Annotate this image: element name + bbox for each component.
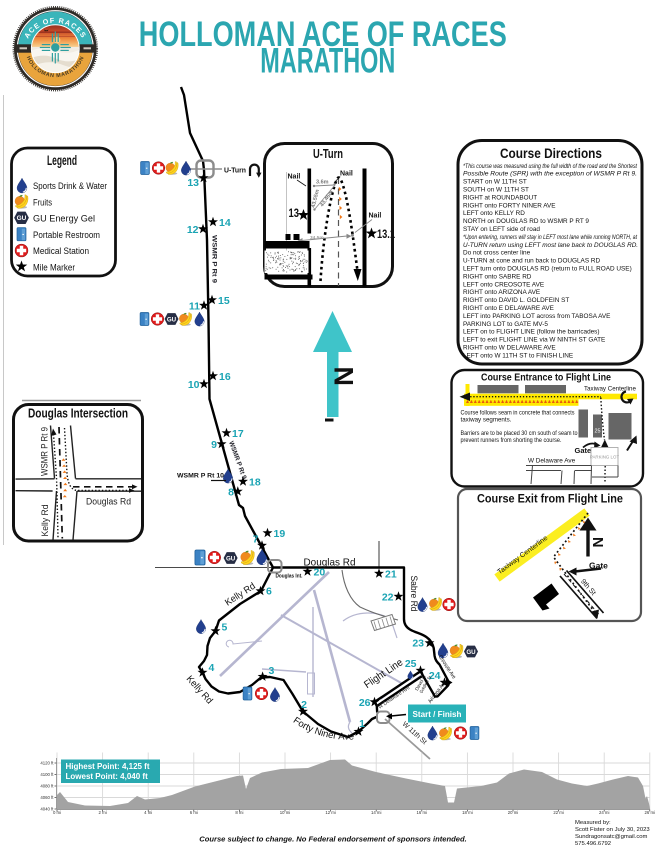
svg-text:Course follows seam in concret: Course follows seam in concrete that con… [461,410,575,417]
svg-text:Nail: Nail [369,213,382,220]
svg-text:WSMR P Rt 9: WSMR P Rt 9 [40,427,50,476]
svg-text:25: 25 [595,429,601,435]
svg-text:13: 13 [289,208,300,220]
svg-text:4: 4 [209,662,215,674]
svg-text:12: 12 [187,224,199,236]
svg-text:8: 8 [228,487,234,499]
svg-text:5: 5 [222,622,228,634]
svg-text:RIGHT onto E DELAWARE AVE: RIGHT onto E DELAWARE AVE [463,305,554,312]
svg-text:19: 19 [274,528,286,540]
svg-text:N: N [329,367,359,387]
svg-text:23: 23 [412,638,424,650]
svg-text:LEFT onto CREOSOTE AVE: LEFT onto CREOSOTE AVE [463,281,544,288]
svg-text:U-Turn: U-Turn [313,146,343,161]
svg-text:Taxiway Centerline: Taxiway Centerline [584,386,636,393]
svg-text:LEFT onto KELLY RD: LEFT onto KELLY RD [463,210,525,217]
svg-text:13.1: 13.1 [377,229,395,241]
svg-text:Douglas Intersection: Douglas Intersection [28,407,128,421]
svg-text:Douglas Rd: Douglas Rd [86,497,131,507]
svg-text:4120 ft: 4120 ft [40,761,54,766]
svg-text:*Upon entering, runners will s: *Upon entering, runners will stay in LEF… [463,234,637,241]
svg-text:MARATHON: MARATHON [260,42,395,81]
svg-text:Highest Point: 4,125 ft: Highest Point: 4,125 ft [66,762,150,771]
svg-text:22: 22 [382,592,394,604]
svg-text:prevent runners from shorting: prevent runners from shorting the course… [461,437,562,444]
svg-text:RIGHT onto ARIZONA AVE: RIGHT onto ARIZONA AVE [463,289,540,296]
svg-text:PARKING LOT to GATE MV-5: PARKING LOT to GATE MV-5 [463,321,548,328]
svg-text:LEFT on to FLIGHT LINE (follow: LEFT on to FLIGHT LINE (follow the barri… [463,329,600,336]
svg-text:Course subject to change. No F: Course subject to change. No Federal end… [199,835,467,844]
svg-text:PARKING LOT: PARKING LOT [590,455,620,460]
svg-text:Mile Marker: Mile Marker [33,263,76,274]
svg-text:Possible Route (SPR) with the: Possible Route (SPR) with the exception … [463,171,637,178]
svg-text:17: 17 [232,428,244,440]
svg-text:Douglas Rd: Douglas Rd [304,557,356,569]
svg-text:18: 18 [249,477,261,489]
svg-text:26: 26 [359,697,371,709]
svg-text:RIGHT onto FORTY NINER AVE: RIGHT onto FORTY NINER AVE [463,202,556,209]
svg-text:Scott Fister on July 30, 2023: Scott Fister on July 30, 2023 [575,827,650,833]
svg-text:RIGHT onto DAVID L. GOLDFEIN S: RIGHT onto DAVID L. GOLDFEIN ST [463,297,569,304]
svg-text:7: 7 [253,534,259,546]
svg-text:taxiway segments.: taxiway segments. [461,417,512,424]
svg-text:4100 ft: 4100 ft [40,772,54,777]
svg-text:3.6m: 3.6m [316,180,329,186]
svg-text:U-Turn: U-Turn [224,166,246,175]
svg-text:SOUTH on W 11TH ST: SOUTH on W 11TH ST [463,187,529,194]
svg-text:START on W 11TH ST: START on W 11TH ST [463,179,527,186]
svg-text:LEFT onto W 11TH ST to FINISH: LEFT onto W 11TH ST to FINISH LINE [463,352,573,359]
svg-text:N: N [589,537,605,547]
svg-text:4080 ft: 4080 ft [40,784,54,789]
svg-text:4060 ft: 4060 ft [40,795,54,800]
svg-text:10: 10 [188,379,200,391]
svg-text:Sabre Rd: Sabre Rd [408,576,419,612]
svg-text:NORTH on DOUGLAS RD to WSMR P: NORTH on DOUGLAS RD to WSMR P RT 9 [463,218,589,225]
svg-text:Douglas Int.: Douglas Int. [276,573,303,579]
svg-text:U-TURN return using LEFT most: U-TURN return using LEFT most lane back … [463,242,638,249]
svg-text:575.496.6792: 575.496.6792 [575,841,611,847]
svg-text:Sundragonsatc@gmail.com: Sundragonsatc@gmail.com [575,834,648,840]
svg-text:W Delaware Ave: W Delaware Ave [528,458,576,465]
svg-text:RIGHT onto SABRE RD: RIGHT onto SABRE RD [463,273,532,280]
svg-text:Course Directions: Course Directions [500,146,602,161]
svg-text:STAY on LEFT side of road: STAY on LEFT side of road [463,226,540,233]
svg-text:34.5m: 34.5m [310,235,324,241]
svg-text:2: 2 [301,699,307,711]
svg-text:Nail: Nail [288,174,301,181]
svg-text:Sports Drink & Water: Sports Drink & Water [33,181,108,192]
svg-text:RIGHT at ROUNDABOUT: RIGHT at ROUNDABOUT [463,194,537,201]
svg-text:Kelly Rd: Kelly Rd [40,504,50,536]
svg-text:LEFT into PARKING LOT across f: LEFT into PARKING LOT across from TABOSA… [463,313,610,320]
svg-text:Nail: Nail [340,171,353,178]
svg-text:U-TURN at cone and run back to: U-TURN at cone and run back to DOUGLAS R… [463,258,600,265]
svg-text:Gate: Gate [575,446,592,455]
svg-text:3: 3 [269,665,275,677]
svg-text:1: 1 [359,718,365,730]
svg-text:14: 14 [219,217,231,229]
svg-text:16: 16 [219,371,231,383]
svg-text:*This course was measured usin: *This course was measured using the full… [463,163,637,170]
svg-text:WSMR P Rt 9: WSMR P Rt 9 [211,235,218,283]
svg-text:Portable Restroom: Portable Restroom [33,230,100,241]
svg-text:LEFT to exit FLIGHT LINE via W: LEFT to exit FLIGHT LINE via W NINTH ST … [463,337,605,344]
svg-text:25: 25 [405,658,417,670]
svg-text:Barriers are to be placed 30 c: Barriers are to be placed 30 cm south of… [461,430,578,437]
svg-text:LEFT turn onto DOUGLAS RD (ret: LEFT turn onto DOUGLAS RD (return to FUL… [463,266,632,273]
svg-text:Course Exit from Flight Line: Course Exit from Flight Line [477,494,623,506]
svg-text:15: 15 [218,295,230,307]
svg-text:Fruits: Fruits [33,197,52,208]
svg-text:Course Entrance to Flight Line: Course Entrance to Flight Line [481,372,611,384]
svg-text:Measured by:: Measured by: [575,820,611,826]
svg-text:Do not cross center line: Do not cross center line [463,250,531,257]
svg-text:13: 13 [187,177,199,189]
svg-text:WSMR P Rt 10: WSMR P Rt 10 [177,473,224,480]
svg-text:Start / Finish: Start / Finish [413,709,462,719]
svg-text:21: 21 [385,569,397,581]
svg-text:9: 9 [211,439,217,451]
svg-text:Medical Station: Medical Station [33,246,89,257]
svg-text:11: 11 [189,301,200,313]
svg-text:RIGHT onto W DELAWARE AVE: RIGHT onto W DELAWARE AVE [463,345,556,352]
svg-text:Legend: Legend [47,153,77,168]
svg-text:6: 6 [266,586,272,598]
svg-text:Lowest Point: 4,040 ft: Lowest Point: 4,040 ft [66,772,149,781]
svg-text:GU Energy Gel: GU Energy Gel [33,214,95,225]
